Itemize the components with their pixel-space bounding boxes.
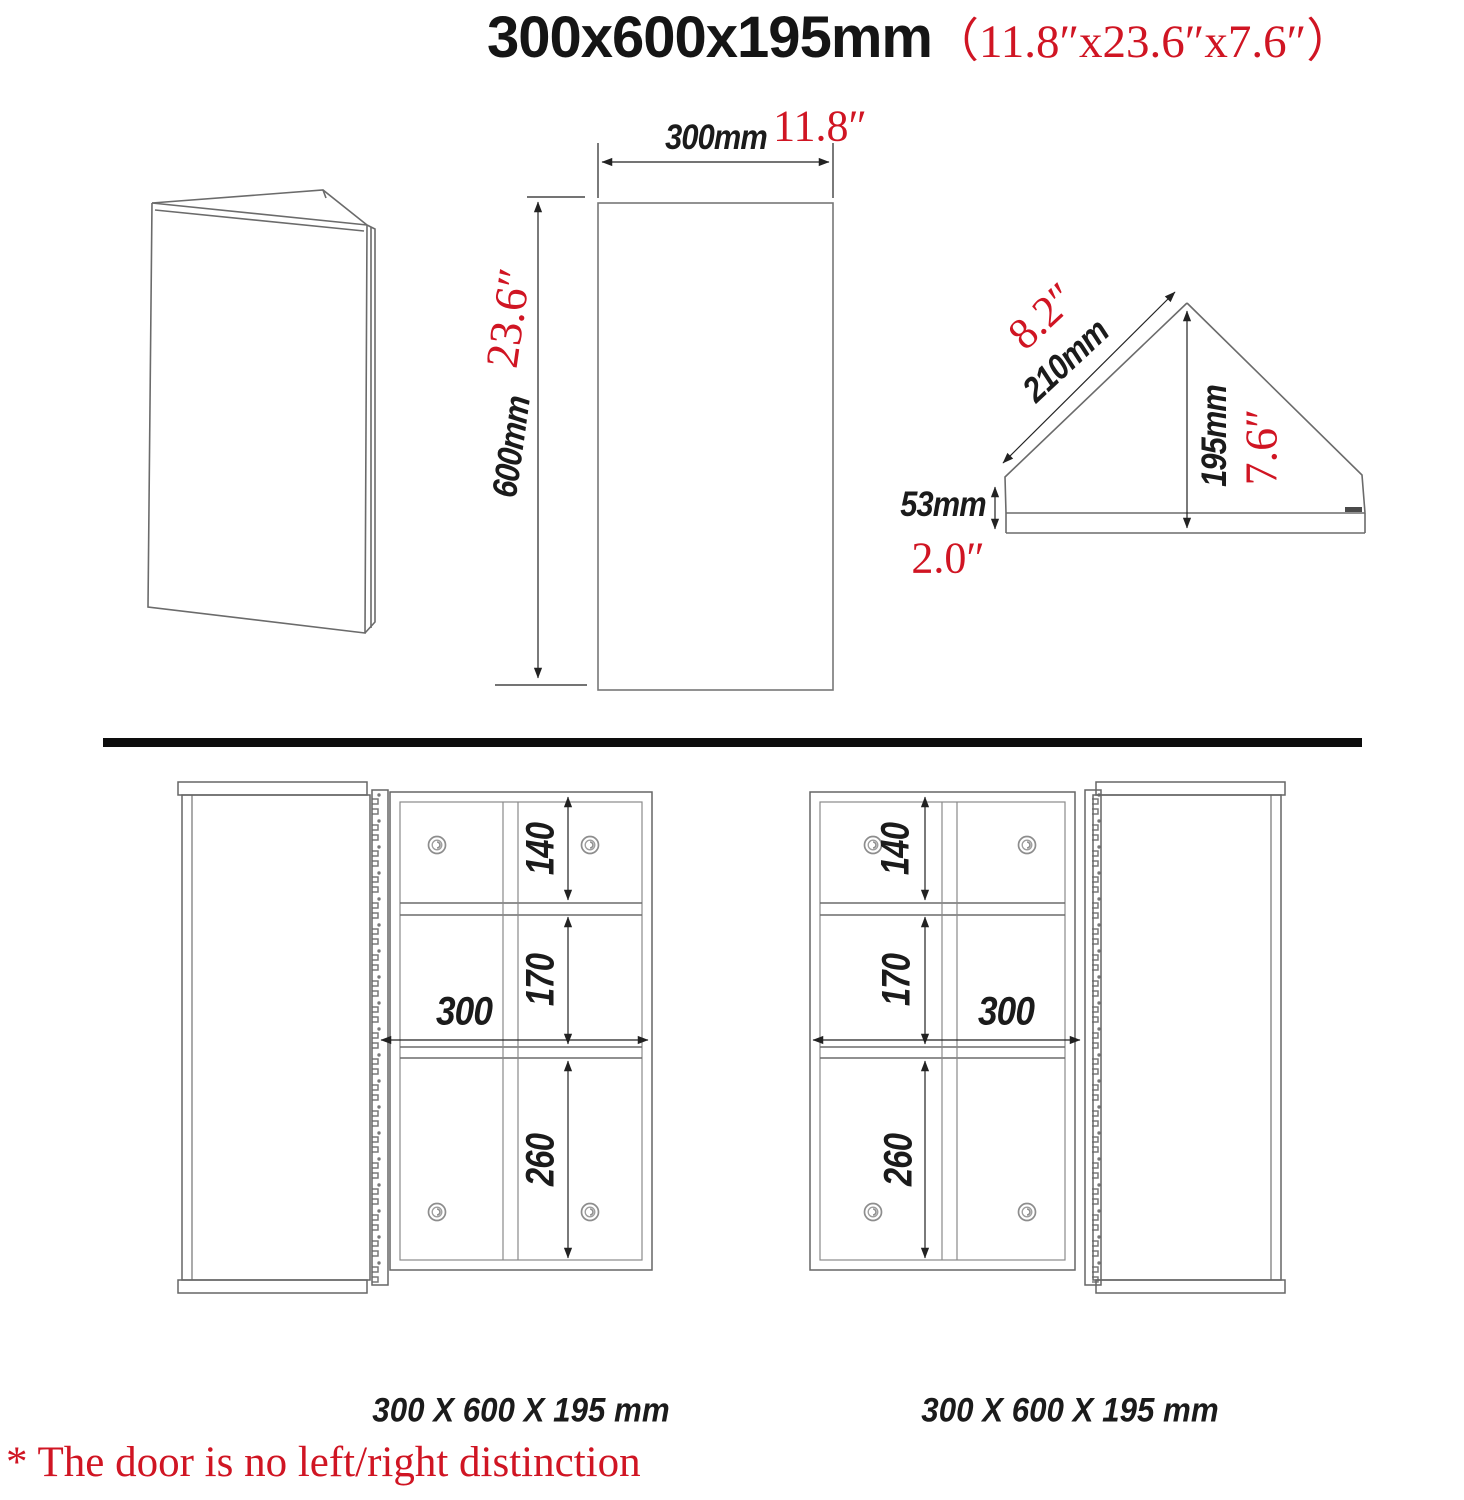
open-view-left-figure <box>178 782 652 1293</box>
top-depth-mm-label: 195mm <box>1195 385 1235 487</box>
door-note: * The door is no left/right distinction <box>6 1438 641 1487</box>
top-depth-in-label: 7.6″ <box>1235 409 1288 486</box>
dimension-lines <box>813 797 1080 1258</box>
top-front-in-label: 2.0″ <box>911 533 984 584</box>
hinge-strip <box>372 790 388 1285</box>
lock-icon <box>429 1204 446 1221</box>
door-top-edge <box>1096 782 1285 795</box>
left-inner-width-label: 300 <box>436 990 492 1035</box>
door-bottom-edge <box>178 1280 367 1293</box>
right-compartment-top-label: 140 <box>874 823 919 875</box>
lock-icon <box>865 1204 882 1221</box>
page-title: 300x600x195mm（11.8″x23.6″x7.6″） <box>487 2 1353 71</box>
lock-icon <box>1019 1204 1036 1221</box>
door-top-edge <box>178 782 367 795</box>
open-door-panel <box>182 795 370 1280</box>
front-width-mm-label: 300mm <box>665 118 767 158</box>
lock-icon <box>1019 837 1036 854</box>
door-bottom-edge <box>1096 1280 1285 1293</box>
lock-icon <box>429 837 446 854</box>
title-imperial: （11.8″x23.6″x7.6″） <box>932 16 1353 68</box>
front-width-in-label: 11.8″ <box>773 101 867 152</box>
right-compartment-bottom-label: 260 <box>877 1134 922 1186</box>
cabinet-dimension-diagram: 300x600x195mm（11.8″x23.6″x7.6″） 300mm 11… <box>0 0 1464 1500</box>
right-caption: 300 X 600 X 195 mm <box>921 1392 1218 1431</box>
left-compartment-bottom-label: 260 <box>519 1134 564 1186</box>
right-inner-width-label: 300 <box>978 990 1034 1035</box>
left-compartment-top-label: 140 <box>519 823 564 875</box>
top-front-mm-label: 53mm <box>900 485 986 525</box>
lock-icon <box>582 837 599 854</box>
front-view-figure <box>495 143 833 690</box>
door-handle-mark <box>1345 507 1362 512</box>
dimension-lines <box>381 797 648 1258</box>
right-compartment-middle-label: 170 <box>875 954 920 1006</box>
lock-icon <box>582 1204 599 1221</box>
left-caption: 300 X 600 X 195 mm <box>372 1392 669 1431</box>
divider-line <box>103 738 1362 747</box>
title-metric: 300x600x195mm <box>487 5 932 70</box>
diagram-linework <box>0 0 1464 1500</box>
cabinet-3d-view <box>148 190 375 633</box>
left-compartment-middle-label: 170 <box>519 954 564 1006</box>
open-door-panel <box>1093 795 1281 1280</box>
